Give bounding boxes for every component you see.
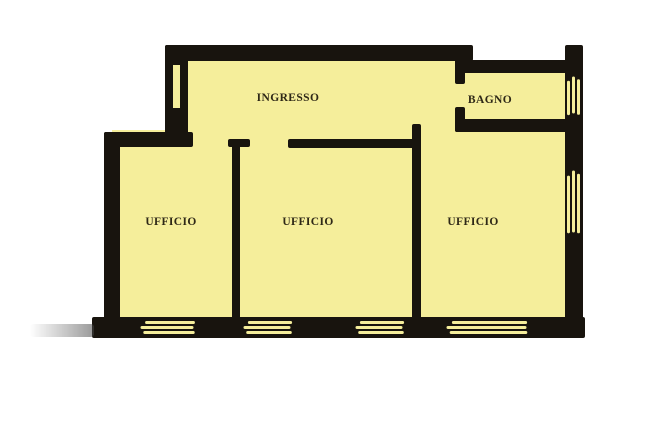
window-hatch bbox=[356, 326, 403, 329]
room-label-bagno: BAGNO bbox=[468, 94, 512, 106]
window-hatch bbox=[450, 331, 528, 334]
wall-top bbox=[165, 45, 473, 61]
room-label-ufficio-center: UFFICIO bbox=[282, 216, 333, 228]
room-label-ufficio-left: UFFICIO bbox=[145, 216, 196, 228]
window-hatch bbox=[572, 171, 575, 233]
window-ufficio-left bbox=[142, 321, 195, 334]
floorplan-drawing bbox=[0, 0, 664, 423]
wall-left bbox=[104, 132, 120, 338]
window-hatch bbox=[141, 326, 194, 329]
wall-bagno-bottom bbox=[455, 119, 567, 132]
window-hatch bbox=[358, 331, 404, 334]
entrance-door bbox=[173, 65, 180, 108]
window-hatch bbox=[567, 176, 570, 234]
window-ufficio-right-side bbox=[567, 172, 580, 234]
window-hatch bbox=[360, 321, 404, 324]
window-bagno bbox=[567, 78, 580, 115]
window-hatch bbox=[246, 331, 292, 334]
wall-divider2 bbox=[412, 124, 421, 322]
window-hatch bbox=[244, 326, 291, 329]
scan-smudge bbox=[30, 324, 94, 337]
window-ufficio-center-1 bbox=[245, 321, 292, 334]
window-hatch bbox=[577, 79, 580, 115]
wall-divider1 bbox=[232, 141, 240, 322]
window-hatch bbox=[452, 321, 527, 324]
floorplan-scan: INGRESSO BAGNO UFFICIO UFFICIO UFFICIO bbox=[0, 0, 664, 423]
window-ufficio-center-2 bbox=[357, 321, 404, 334]
room-label-ingresso: INGRESSO bbox=[257, 92, 320, 104]
window-hatch bbox=[577, 174, 580, 234]
wall-bagno-left-upper-stub bbox=[455, 60, 465, 84]
window-ufficio-right bbox=[448, 321, 528, 334]
window-hatch bbox=[143, 331, 194, 334]
window-hatch bbox=[248, 321, 292, 324]
wall-ufficio-center-top bbox=[288, 139, 415, 148]
rooms-uffici-fill bbox=[112, 130, 574, 330]
window-hatch bbox=[572, 77, 575, 114]
window-hatch bbox=[447, 326, 527, 329]
window-hatch bbox=[145, 321, 195, 324]
room-label-ufficio-right: UFFICIO bbox=[447, 216, 498, 228]
window-hatch bbox=[567, 81, 570, 115]
wall-bagno-top bbox=[455, 60, 583, 73]
